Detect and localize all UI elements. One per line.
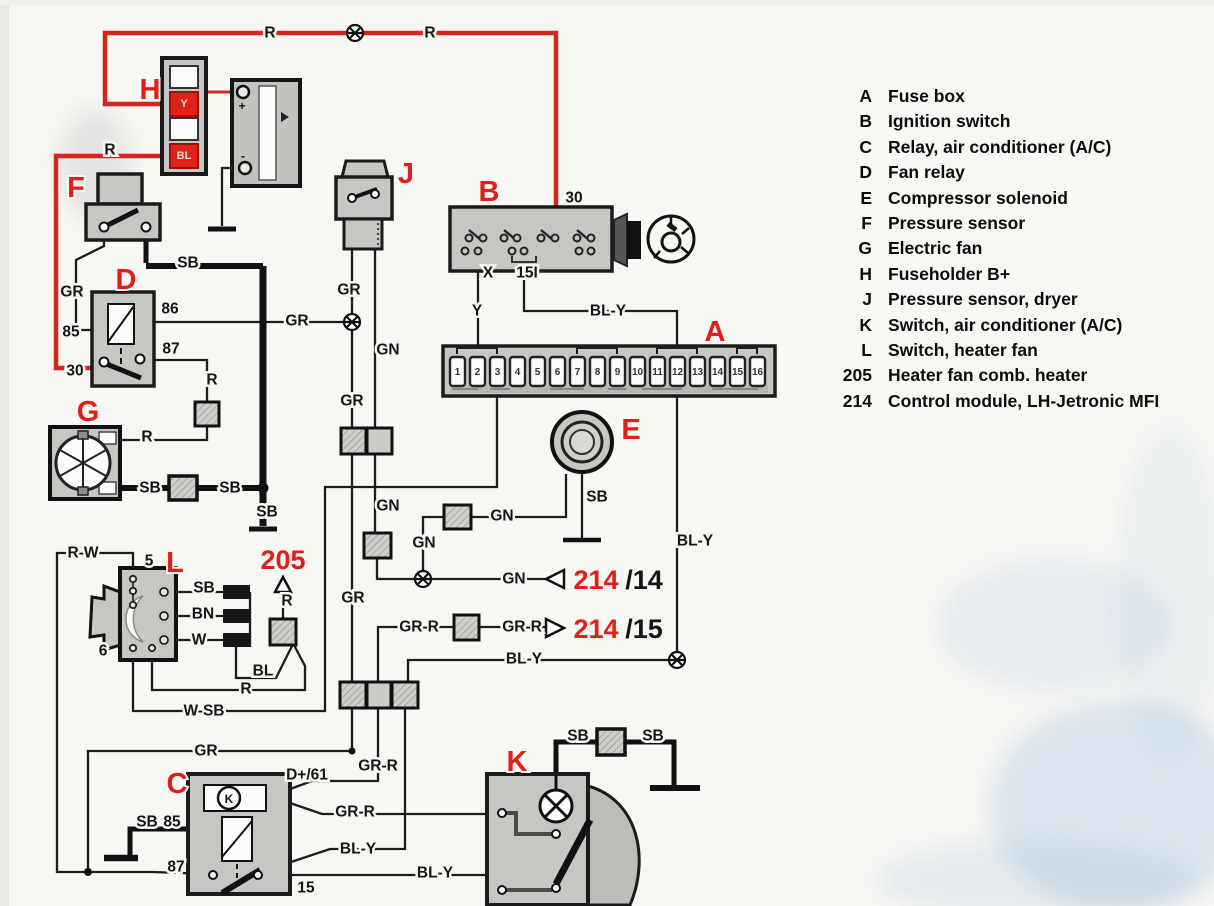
ref-label-15: /15 [625, 614, 663, 644]
fuse-number-5: 5 [535, 367, 541, 378]
legend-key: B [824, 109, 888, 134]
legend-key: 214 [824, 389, 888, 414]
legend-item-D: DFan relay [824, 160, 1214, 185]
wire-label-GR-R: GR-R [502, 619, 542, 636]
wire-label-GN: GN [490, 508, 513, 525]
connector-R [195, 402, 219, 426]
legend: AFuse boxBIgnition switchCRelay, air con… [824, 84, 1214, 414]
component-label-C: C [167, 768, 188, 800]
fuse-number-14: 14 [712, 367, 724, 378]
legend-label: Fuseholder B+ [888, 262, 1214, 287]
connector-plug-body [627, 221, 641, 259]
fuse-number-12: 12 [672, 367, 684, 378]
arrow-214-14 [546, 570, 564, 588]
wire-label-R: R [206, 372, 217, 389]
legend-label: Electric fan [888, 236, 1214, 261]
wire-label-GR: GR [285, 313, 308, 330]
wire-label-GR: GR [341, 590, 364, 607]
legend-item-E: ECompressor solenoid [824, 186, 1214, 211]
wire-label-R: R [104, 142, 115, 159]
legend-key: E [824, 186, 888, 211]
wire-label-SB: SB [586, 489, 608, 506]
ref-label-214: 214 [573, 614, 618, 644]
connector-GR-R [454, 615, 479, 640]
component-F-pressure-sensor [86, 174, 160, 240]
wire-label-85: 85 [62, 324, 80, 341]
tiny-label-+: + [238, 99, 245, 113]
fuse-number-2: 2 [475, 367, 481, 378]
fuse-number-8: 8 [595, 367, 601, 378]
wire-label-BL-Y: BL-Y [417, 865, 454, 882]
component-label-K: K [507, 746, 528, 778]
wire-label-W: W [192, 632, 207, 649]
wire-label-D+/61: D+/61 [286, 767, 328, 784]
wire-label-R: R [141, 429, 152, 446]
legend-label: Fuse box [888, 84, 1214, 109]
ref-label-14: /14 [625, 565, 663, 595]
connector-GN [364, 533, 391, 558]
wire-label-GN: GN [412, 535, 435, 552]
legend-item-J: JPressure sensor, dryer [824, 287, 1214, 312]
fuse-number-7: 7 [575, 367, 581, 378]
fuse-number-9: 9 [615, 367, 621, 378]
fuse-number-10: 10 [632, 367, 644, 378]
wire-label-BN: BN [192, 606, 214, 623]
wire-label-87: 87 [162, 341, 179, 358]
legend-key: L [824, 338, 888, 363]
fuse-number-16: 16 [752, 367, 764, 378]
wire-label-R: R [281, 593, 292, 610]
component-B-ignition-switch [450, 207, 694, 271]
legend-key: F [824, 211, 888, 236]
component-label-E: E [621, 414, 640, 446]
component-label-F: F [67, 172, 85, 204]
fuse-number-3: 3 [495, 367, 501, 378]
legend-item-A: AFuse box [824, 84, 1214, 109]
component-G-electric-fan [50, 427, 120, 499]
arrow-205 [275, 577, 291, 592]
wire-label-R-W: R-W [68, 545, 99, 562]
wire-label-GR: GR [337, 282, 360, 299]
wire-label-Y: Y [472, 303, 483, 320]
fuse-number-15: 15 [732, 367, 744, 378]
legend-key: G [824, 236, 888, 261]
component-label-D: D [116, 264, 137, 296]
wire-label-GN: GN [502, 571, 525, 588]
wire-label-X: X [483, 265, 494, 282]
wire-label-BL: BL [253, 663, 274, 680]
wire-label-BL-Y: BL-Y [590, 303, 627, 320]
legend-item-G: GElectric fan [824, 236, 1214, 261]
wire-label-SB: SB [256, 504, 278, 521]
legend-label: Switch, heater fan [888, 338, 1214, 363]
legend-label: Compressor solenoid [888, 186, 1214, 211]
wire-label-GR: GR [60, 284, 83, 301]
connector-SB [169, 476, 197, 500]
component-J-pressure-sensor-dryer [336, 161, 392, 249]
wire-label-SB: SB [642, 728, 664, 745]
component-label-B: B [479, 176, 500, 208]
legend-label: Pressure sensor [888, 211, 1214, 236]
wire-label-6: 6 [99, 643, 108, 660]
legend-item-H: HFuseholder B+ [824, 262, 1214, 287]
component-A-fuse-box: 12345678910111213141516 [443, 346, 775, 396]
wire-label-86: 86 [161, 301, 179, 318]
legend-key: D [824, 160, 888, 185]
wire-label-30: 30 [66, 363, 83, 380]
wire-label-30: 30 [565, 190, 582, 207]
arrow-214-15 [546, 619, 564, 637]
legend-item-C: CRelay, air conditioner (A/C) [824, 135, 1214, 160]
component-D-fan-relay [92, 292, 154, 386]
component-label-G: G [77, 396, 100, 428]
connector-SB-K [597, 729, 625, 755]
ref-label-214: 214 [573, 565, 618, 595]
wire-label-SB: SB [567, 728, 589, 745]
legend-label: Ignition switch [888, 109, 1214, 134]
legend-item-K: KSwitch, air conditioner (A/C) [824, 313, 1214, 338]
legend-label: Control module, LH-Jetronic MFI [888, 389, 1214, 414]
wire-label-W-SB: W-SB [183, 703, 224, 720]
wire-label-GR: GR [340, 393, 363, 410]
wire-label-GR-R: GR-R [358, 758, 398, 775]
scanned-wiring-diagram-page: 12345678910111213141516 [0, 0, 1214, 906]
component-C-ac-relay [188, 774, 290, 894]
wire-label-SB: SB [136, 814, 158, 831]
wire-label-R: R [424, 25, 435, 42]
wire-label-BL-Y: BL-Y [340, 841, 377, 858]
wire-label-SB: SB [219, 480, 241, 497]
wire-label-GN: GN [376, 498, 399, 515]
battery [232, 80, 300, 186]
component-label-L: L [166, 547, 184, 579]
legend-list: AFuse boxBIgnition switchCRelay, air con… [824, 84, 1214, 414]
component-K-ac-switch [487, 774, 639, 905]
fuse-number-4: 4 [515, 367, 521, 378]
fuse-number-1: 1 [455, 367, 461, 378]
legend-key: J [824, 287, 888, 312]
wire-label-GR-R: GR-R [335, 804, 375, 821]
legend-item-L: LSwitch, heater fan [824, 338, 1214, 363]
legend-key: A [824, 84, 888, 109]
wire-label-GR-R: GR-R [399, 619, 439, 636]
wire-label-85: 85 [163, 814, 181, 831]
fuse-number-11: 11 [652, 367, 663, 378]
legend-item-B: BIgnition switch [824, 109, 1214, 134]
fuse-number-13: 13 [692, 367, 704, 378]
wire-label-BL-Y: BL-Y [677, 533, 714, 550]
component-E-compressor-solenoid [552, 412, 612, 472]
fuseholder-fuse-label-BL: BL [177, 150, 192, 162]
wire-label-SB: SB [139, 480, 161, 497]
legend-label: Pressure sensor, dryer [888, 287, 1214, 312]
battery-plus-terminal [237, 86, 249, 98]
legend-key: H [824, 262, 888, 287]
component-label-H: H [140, 74, 161, 106]
wire-label-R: R [240, 681, 251, 698]
wire-label-15: 15 [297, 880, 315, 897]
legend-key: C [824, 135, 888, 160]
connector-triple [340, 682, 418, 708]
connector-plug [614, 214, 627, 266]
knob [90, 586, 120, 650]
wire-label-5: 5 [145, 553, 154, 570]
wire-label-R: R [264, 25, 275, 42]
connector-GN-E [444, 505, 471, 529]
battery-minus-terminal [239, 162, 251, 174]
tiny-label-K: K [225, 792, 234, 806]
wire-label-GR: GR [194, 743, 217, 760]
wire-label-15I: 15I [516, 265, 538, 282]
tiny-label--: - [241, 149, 245, 163]
connector-double [341, 428, 392, 454]
legend-label: Relay, air conditioner (A/C) [888, 135, 1214, 160]
control-module-arrows [546, 570, 564, 637]
legend-item-F: FPressure sensor [824, 211, 1214, 236]
component-label-J: J [398, 158, 414, 190]
fuse-number-6: 6 [555, 367, 561, 378]
legend-label: Heater fan comb. heater [888, 363, 1214, 388]
legend-key: K [824, 313, 888, 338]
wire-label-GN: GN [376, 342, 399, 359]
wire-label-SB: SB [193, 580, 215, 597]
legend-item-205: 205Heater fan comb. heater [824, 363, 1214, 388]
legend-key: 205 [824, 363, 888, 388]
component-label-A: A [705, 316, 726, 348]
legend-item-214: 214Control module, LH-Jetronic MFI [824, 389, 1214, 414]
wire-label-BL-Y: BL-Y [506, 651, 543, 668]
legend-label: Switch, air conditioner (A/C) [888, 313, 1214, 338]
component-label-205: 205 [260, 545, 305, 575]
fuseholder-fuse-label-Y: Y [180, 98, 188, 110]
resistor-blocks [223, 585, 250, 647]
wire-label-SB: SB [177, 255, 199, 272]
legend-label: Fan relay [888, 160, 1214, 185]
wire-label-87: 87 [167, 859, 184, 876]
ignition-key-icon [648, 216, 694, 262]
